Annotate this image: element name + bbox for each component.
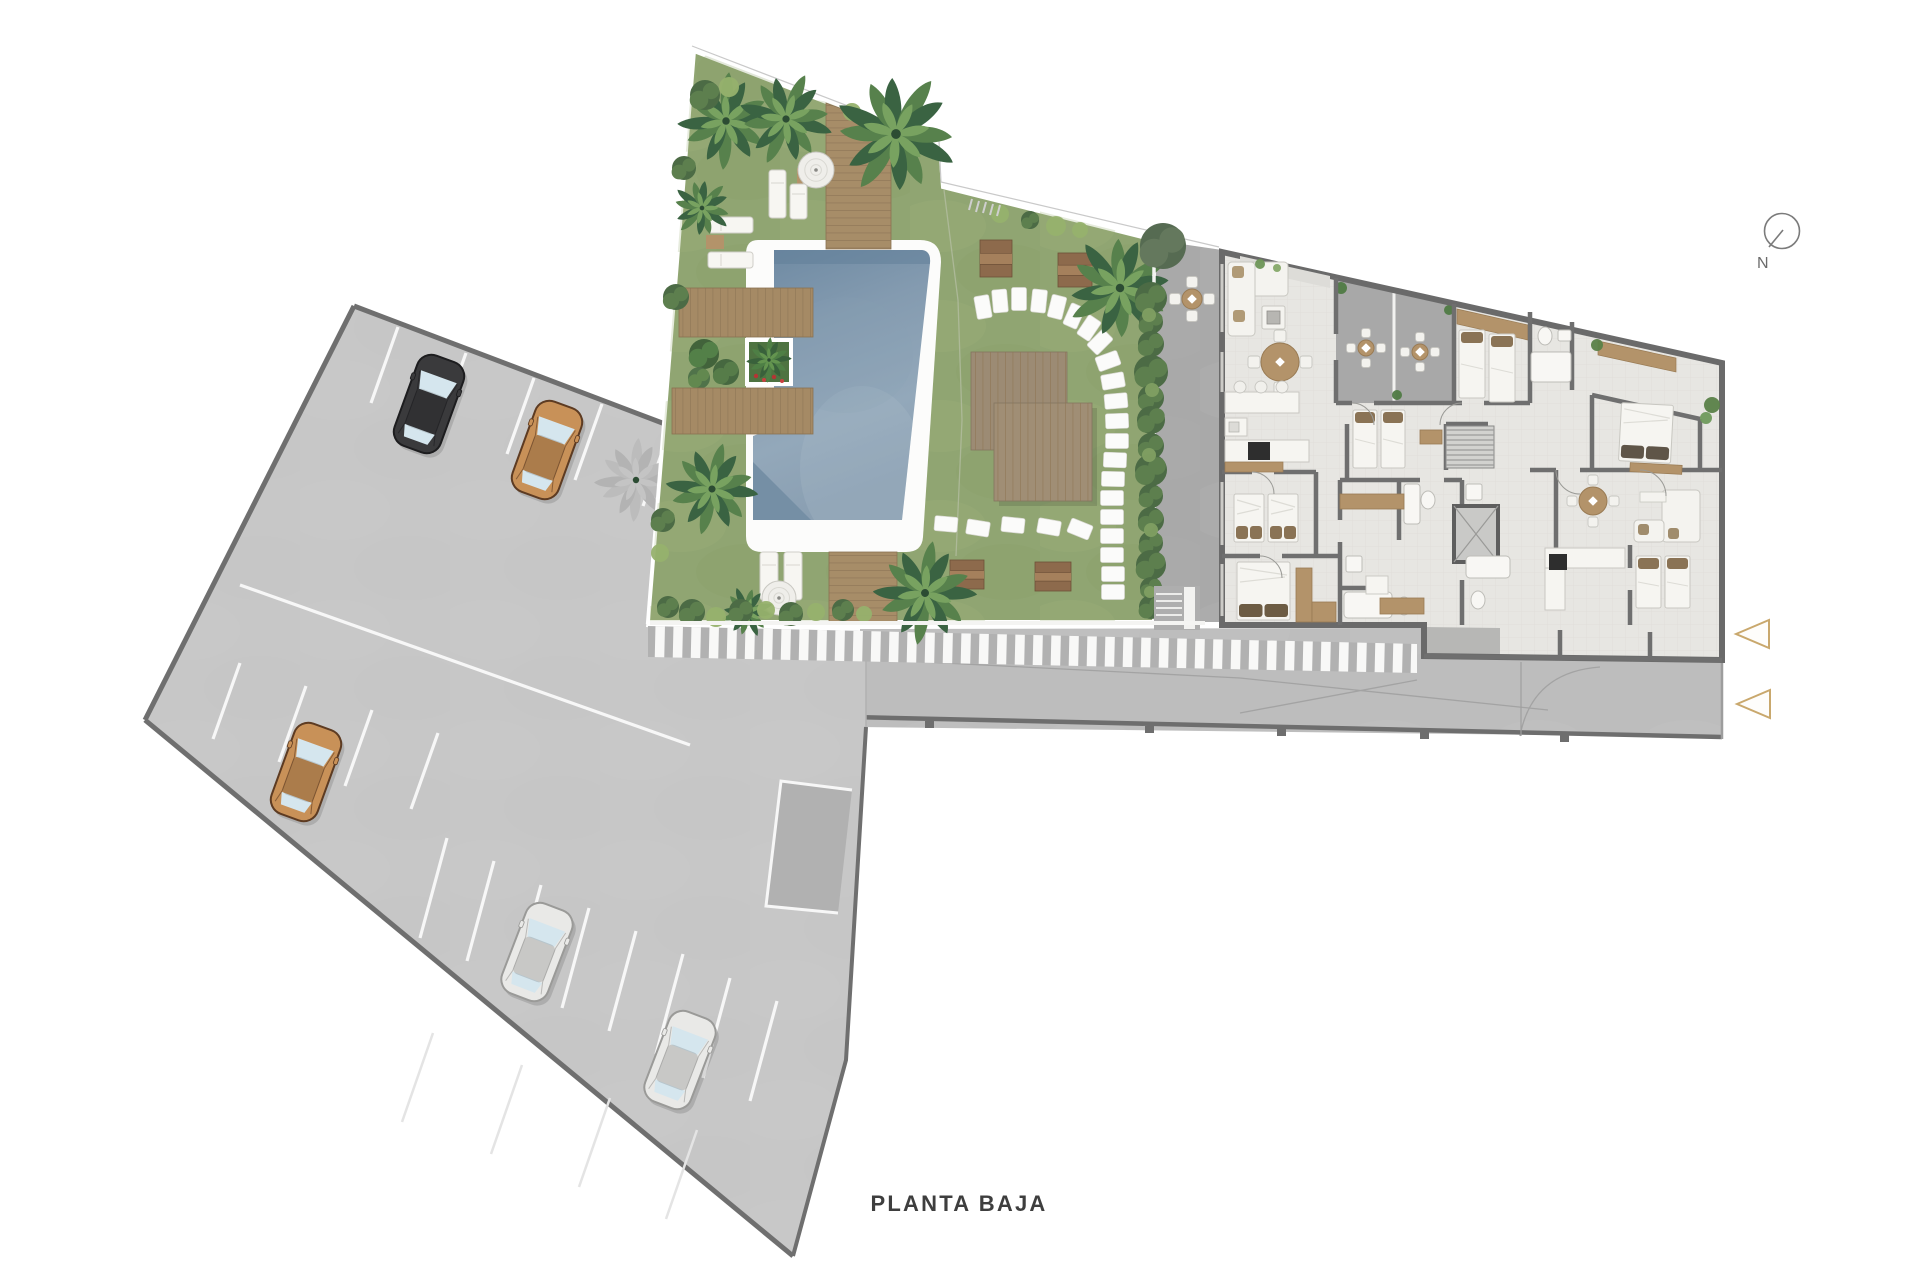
svg-text:PLANTA BAJA: PLANTA BAJA	[871, 1191, 1048, 1216]
svg-text:N: N	[1757, 255, 1769, 272]
